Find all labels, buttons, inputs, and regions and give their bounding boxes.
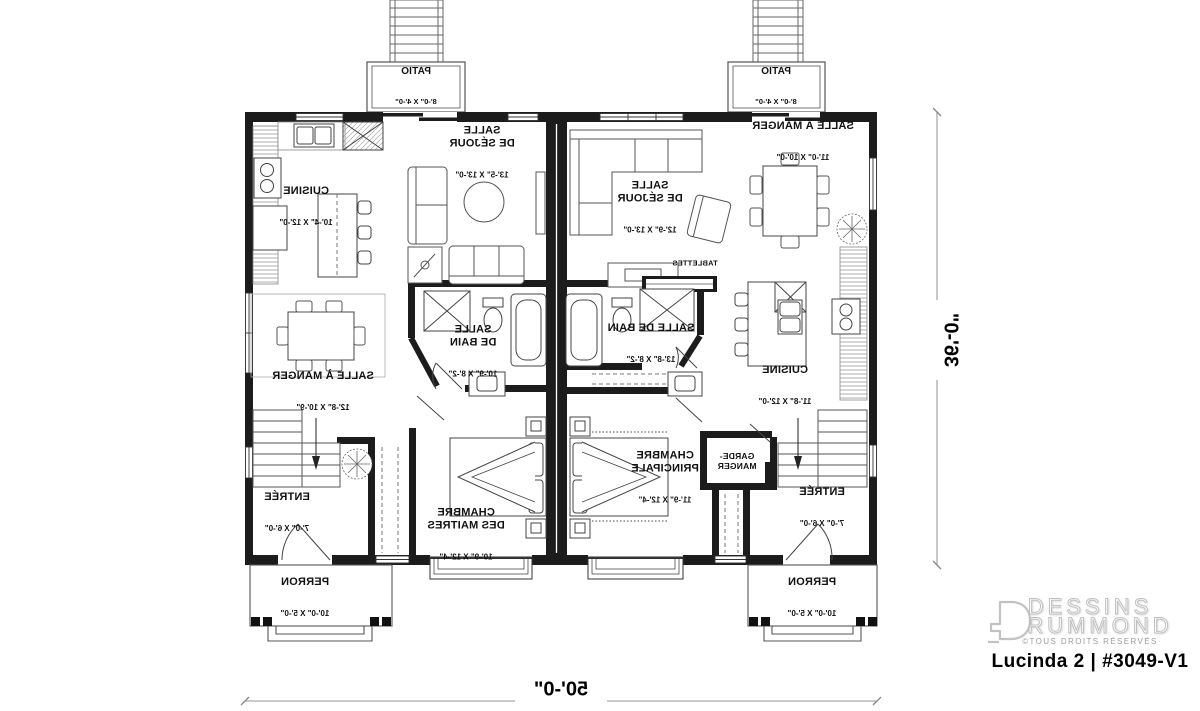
- overall-depth-dimension: 36'-0": [939, 313, 962, 367]
- bath-right-fixtures: [566, 289, 702, 396]
- patio-door-right: [752, 112, 820, 122]
- bedroom-right-furniture: [570, 417, 668, 538]
- living-left-furniture: [408, 167, 545, 284]
- closets-right: [725, 494, 738, 553]
- living-right-furniture: [570, 130, 732, 292]
- bath-left-fixtures: [424, 291, 546, 396]
- bay-window-left: [430, 555, 532, 579]
- kitchen-left-furniture: [253, 122, 383, 284]
- stairs-left: [253, 410, 340, 487]
- closets-left: [382, 447, 398, 553]
- perron-right: [748, 565, 877, 641]
- patio-right: [728, 62, 825, 112]
- garde-manger-walls: [700, 431, 772, 490]
- overall-width-dimension: 50'-0": [534, 679, 588, 702]
- dining-right-furniture: [750, 153, 829, 248]
- plan-title: Lucinda 2 | #3049-V1: [985, 651, 1195, 673]
- bedroom-left-furniture: [450, 417, 546, 538]
- patio-stairs-left: [390, 0, 443, 62]
- stairs-right: [778, 410, 867, 487]
- drummond-d-logo-icon: [985, 597, 1033, 649]
- dining-left-furniture: [251, 294, 385, 377]
- plant-left: [342, 449, 372, 479]
- patio-door-left: [383, 112, 457, 122]
- perron-left: [250, 565, 392, 641]
- patio-stairs-right: [753, 0, 803, 62]
- patio-left: [367, 62, 465, 112]
- plant-right: [837, 214, 867, 244]
- brand-block: DESSINS DRUMMOND ©TOUS DROITS RÉSERVÉS L…: [985, 597, 1195, 673]
- kitchen-right-furniture: [735, 247, 867, 400]
- floor-plan-canvas: CUISINE 10'-4" X 12'-0" SALLE DE SÉJOUR …: [0, 0, 1200, 711]
- bay-window-right: [588, 555, 683, 579]
